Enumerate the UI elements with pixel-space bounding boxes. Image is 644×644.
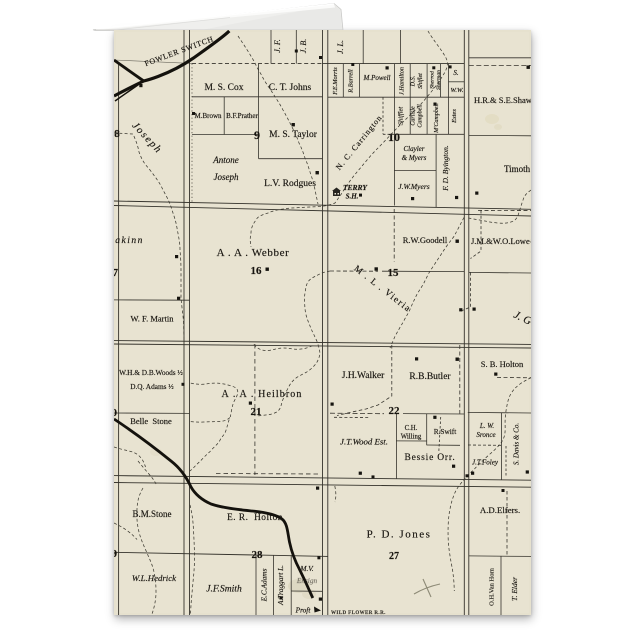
svg-text:C. T. Johns: C. T. Johns <box>269 83 312 93</box>
svg-text:L. W.: L. W. <box>479 422 495 430</box>
svg-text:Proft: Proft <box>295 606 312 615</box>
svg-text:21: 21 <box>251 406 262 418</box>
svg-text:W.H.& D.B.Woods ½: W.H.& D.B.Woods ½ <box>119 368 183 377</box>
svg-text:A.Traggart L.: A.Traggart L. <box>276 565 285 606</box>
svg-text:15: 15 <box>388 267 400 279</box>
svg-text:A . A . Webber: A . A . Webber <box>217 247 290 259</box>
svg-text:J.Hamilton: J.Hamilton <box>399 67 406 95</box>
svg-text:F. D. Byington.: F. D. Byington. <box>441 145 450 192</box>
svg-text:J.T.Wood Est.: J.T.Wood Est. <box>340 437 388 447</box>
svg-text:S. B. Holton: S. B. Holton <box>481 359 524 369</box>
svg-text:Shifflet: Shifflet <box>398 107 405 126</box>
svg-text:9: 9 <box>254 128 260 142</box>
svg-text:& Myers: & Myers <box>402 154 427 162</box>
svg-text:Willing: Willing <box>401 434 422 441</box>
svg-text:D.S.: D.S. <box>410 76 417 88</box>
svg-text:S.H.: S.H. <box>346 193 359 201</box>
svg-text:20: 20 <box>106 407 118 419</box>
svg-text:R.B.Butler: R.B.Butler <box>409 372 451 382</box>
svg-text:J. B.: J. B. <box>299 39 308 53</box>
svg-text:Belle Stone: Belle Stone <box>130 416 172 426</box>
svg-text:A . A . Heilbron: A . A . Heilbron <box>222 389 303 400</box>
svg-text:M.Brown: M.Brown <box>194 112 222 120</box>
svg-text:8: 8 <box>114 128 120 140</box>
svg-text:O.H.Van Horn: O.H.Van Horn <box>489 567 496 605</box>
svg-text:J. F.: J. F. <box>273 39 282 52</box>
svg-text:L.V. Rodgues: L.V. Rodgues <box>264 179 316 189</box>
svg-text:29: 29 <box>106 548 118 560</box>
svg-text:M′Campbell: M′Campbell <box>434 103 440 134</box>
svg-text:Timoth: Timoth <box>504 164 531 174</box>
svg-text:H.R.& S.E.Shaw½: H.R.& S.E.Shaw½ <box>474 95 539 105</box>
svg-text:D.Q. Adams ½: D.Q. Adams ½ <box>130 382 174 391</box>
svg-text:R.Barrell: R.Barrell <box>348 69 355 94</box>
svg-text:TERRY: TERRY <box>343 183 368 192</box>
svg-text:22: 22 <box>389 405 401 417</box>
svg-text:F.E.Morris: F.E.Morris <box>332 67 339 96</box>
svg-text:J.H.Walker: J.H.Walker <box>342 371 385 381</box>
svg-text:E.C.Adams: E.C.Adams <box>260 568 269 602</box>
svg-text:J.F.Smith: J.F.Smith <box>206 584 242 595</box>
svg-text:W.W.: W.W. <box>451 87 464 94</box>
svg-text:Carlisle: Carlisle <box>411 106 417 126</box>
svg-text:M. S. Taylor: M. S. Taylor <box>269 130 318 140</box>
svg-text:Sherrod: Sherrod <box>430 71 436 89</box>
svg-text:S.: S. <box>453 69 459 77</box>
svg-text:Bessie Orr.: Bessie Orr. <box>404 453 455 463</box>
svg-text:Campbell: Campbell <box>418 104 424 128</box>
svg-text:B.M.Stone: B.M.Stone <box>132 509 171 519</box>
svg-text:B.F.Prather: B.F.Prather <box>226 112 258 120</box>
svg-text:R.Swift: R.Swift <box>434 427 457 436</box>
svg-text:28: 28 <box>252 549 264 561</box>
svg-text:Sronce: Sronce <box>476 431 495 439</box>
svg-text:Antone: Antone <box>212 155 239 165</box>
svg-text:J.W.Myers: J.W.Myers <box>398 182 429 191</box>
svg-text:10: 10 <box>388 130 400 144</box>
svg-text:W. F. Martin: W. F. Martin <box>131 314 175 324</box>
svg-text:M. S. Cox: M. S. Cox <box>204 83 243 93</box>
svg-text:T. Elder: T. Elder <box>510 577 519 601</box>
svg-text:Estes: Estes <box>451 109 458 124</box>
svg-text:R.W.Goodell: R.W.Goodell <box>403 235 448 245</box>
svg-text:Clayler: Clayler <box>404 145 425 153</box>
svg-text:27: 27 <box>389 551 399 562</box>
svg-text:Shiflet: Shiflet <box>417 73 424 89</box>
svg-text:P. D. Jones: P. D. Jones <box>367 529 432 541</box>
svg-text:WILD FLOWER R.R.: WILD FLOWER R.R. <box>331 611 386 616</box>
svg-text:J.T.Foley: J.T.Foley <box>472 459 499 467</box>
svg-text:A.D.Elfers.: A.D.Elfers. <box>480 505 520 515</box>
svg-text:J.M.&W.O.Loweℓ: J.M.&W.O.Loweℓ <box>471 236 534 246</box>
svg-text:17: 17 <box>107 267 119 279</box>
svg-text:hakinn: hakinn <box>109 236 144 246</box>
svg-text:J. L.: J. L. <box>336 40 345 54</box>
svg-text:M.Powell: M.Powell <box>362 74 390 82</box>
svg-text:Sherman: Sherman <box>436 70 442 90</box>
svg-text:Joseph: Joseph <box>214 172 239 182</box>
svg-text:16: 16 <box>251 265 263 277</box>
svg-text:C.H.: C.H. <box>405 425 418 432</box>
svg-text:S. Davis & Co.: S. Davis & Co. <box>513 423 521 465</box>
